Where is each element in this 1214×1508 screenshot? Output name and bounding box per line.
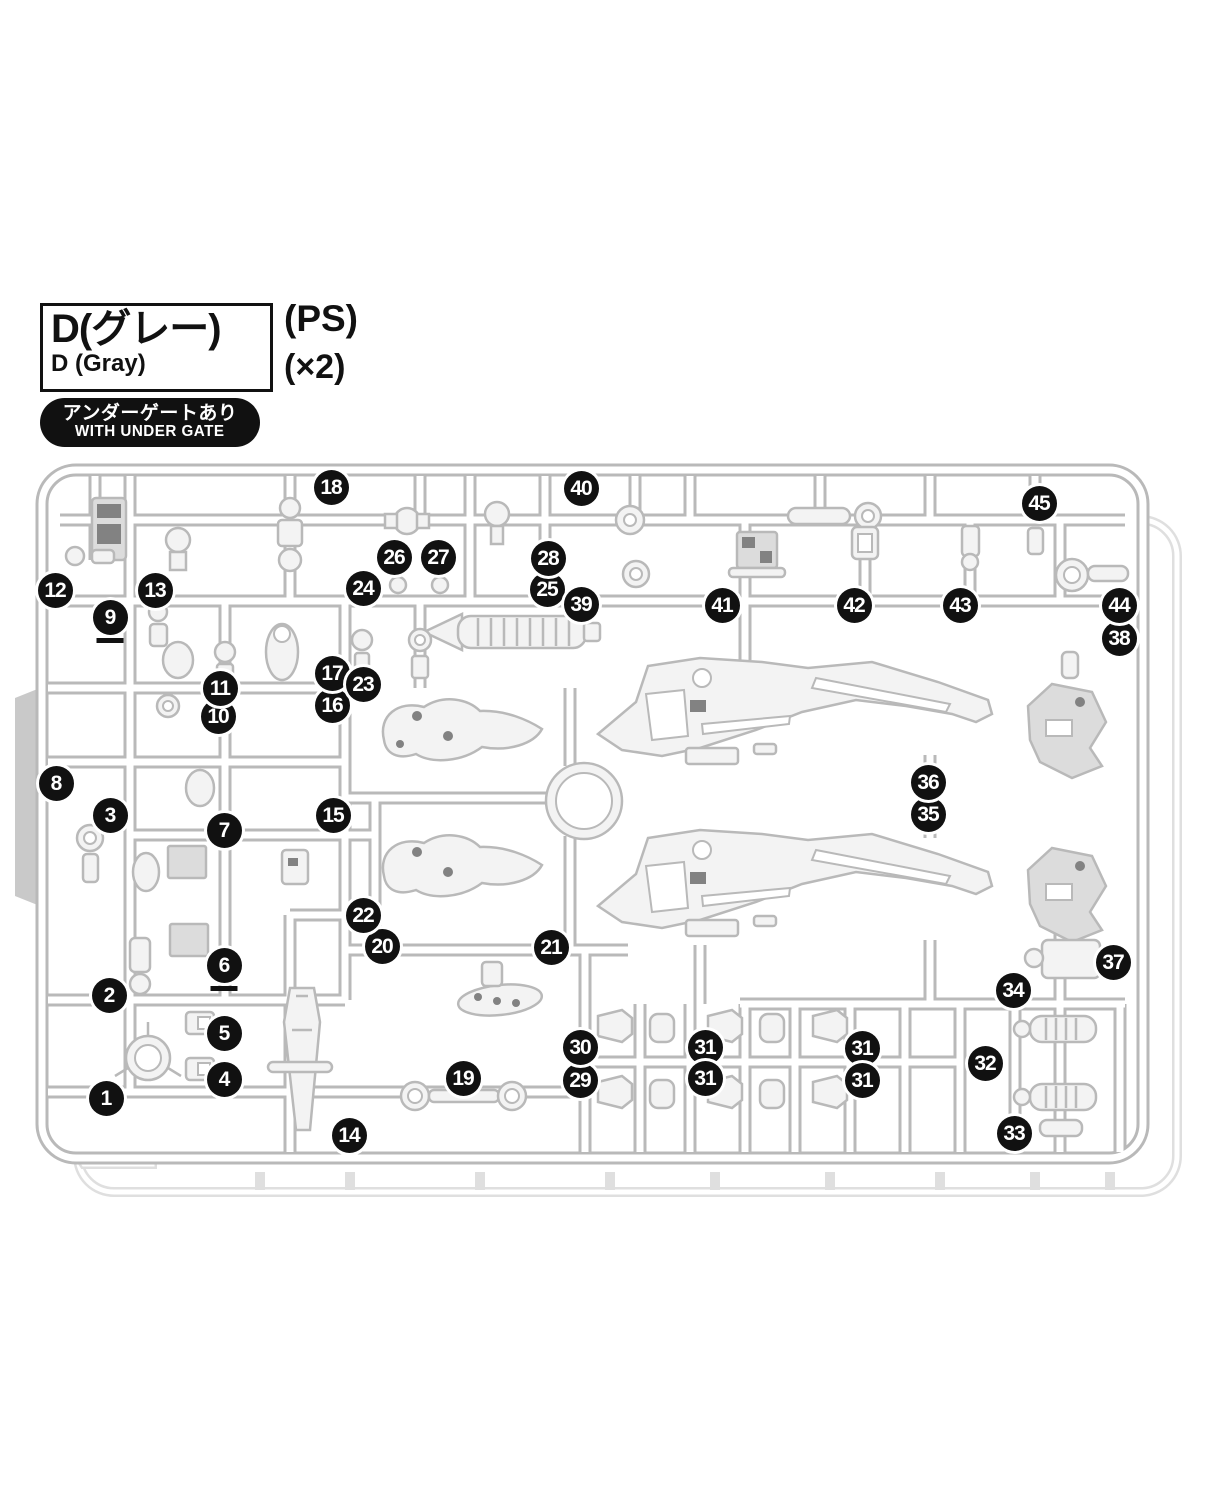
marker-number: 31	[851, 1070, 872, 1091]
marker-number: 25	[536, 579, 557, 600]
marker-number: 21	[540, 937, 561, 958]
part-marker: 28	[531, 541, 566, 576]
part-marker: 3	[93, 798, 128, 833]
marker-number: 18	[320, 477, 341, 498]
marker-number: 45	[1028, 493, 1049, 514]
marker-number: 23	[352, 674, 373, 695]
marker-number: 30	[569, 1037, 590, 1058]
marker-number: 11	[210, 678, 230, 699]
part-marker: 44	[1102, 588, 1137, 623]
marker-number: 44	[1108, 595, 1129, 616]
part-marker: 36	[911, 765, 946, 800]
marker-number: 27	[427, 547, 448, 568]
marker-number: 3	[105, 805, 116, 826]
part-marker: 31	[845, 1031, 880, 1066]
part-marker: 37	[1096, 945, 1131, 980]
markers-layer: 1234567891011121314151617181920212223242…	[0, 0, 1214, 1508]
part-marker: 35	[911, 797, 946, 832]
part-marker: 9	[93, 600, 128, 635]
part-marker: 21	[534, 930, 569, 965]
part-marker: 17	[315, 656, 350, 691]
part-marker: 31	[845, 1063, 880, 1098]
marker-number: 40	[570, 478, 591, 499]
part-marker: 29	[563, 1063, 598, 1098]
part-marker: 30	[563, 1030, 598, 1065]
part-marker: 5	[207, 1016, 242, 1051]
marker-number: 32	[974, 1053, 995, 1074]
marker-number: 13	[144, 580, 165, 601]
marker-number: 5	[219, 1023, 230, 1044]
marker-number: 31	[694, 1068, 715, 1089]
marker-number: 2	[104, 985, 115, 1006]
part-marker: 11	[203, 671, 238, 706]
part-marker: 27	[421, 540, 456, 575]
part-marker: 1	[89, 1081, 124, 1116]
marker-number: 43	[949, 595, 970, 616]
part-marker: 20	[365, 929, 400, 964]
part-marker: 24	[346, 571, 381, 606]
part-marker: 41	[705, 588, 740, 623]
part-marker: 33	[997, 1116, 1032, 1151]
marker-number: 33	[1003, 1123, 1024, 1144]
marker-number: 31	[694, 1037, 715, 1058]
part-marker: 32	[968, 1046, 1003, 1081]
marker-number: 35	[917, 804, 938, 825]
part-marker: 43	[943, 588, 978, 623]
marker-number: 9	[105, 607, 116, 628]
marker-number: 8	[51, 773, 62, 794]
marker-number: 16	[321, 695, 342, 716]
marker-number: 10	[207, 706, 228, 727]
part-marker: 19	[446, 1061, 481, 1096]
marker-number: 17	[321, 663, 342, 684]
manual-page: D(グレー) D (Gray) (PS) (×2) アンダーゲートあり WITH…	[0, 0, 1214, 1508]
part-marker: 14	[332, 1118, 367, 1153]
part-marker: 13	[138, 573, 173, 608]
part-marker: 22	[346, 898, 381, 933]
marker-number: 36	[917, 772, 938, 793]
marker-number: 26	[383, 547, 404, 568]
part-marker: 39	[564, 587, 599, 622]
part-marker: 31	[688, 1030, 723, 1065]
part-marker: 18	[314, 470, 349, 505]
marker-number: 6	[219, 955, 230, 976]
marker-number: 31	[851, 1038, 872, 1059]
marker-number: 41	[711, 595, 732, 616]
marker-number: 7	[219, 820, 230, 841]
part-marker: 34	[996, 973, 1031, 1008]
marker-number: 4	[219, 1069, 230, 1090]
marker-number: 39	[570, 594, 591, 615]
marker-number: 1	[101, 1088, 112, 1109]
part-marker: 16	[315, 688, 350, 723]
part-marker: 38	[1102, 621, 1137, 656]
marker-number: 20	[371, 936, 392, 957]
part-marker: 25	[530, 572, 565, 607]
part-marker: 8	[39, 766, 74, 801]
marker-number: 38	[1108, 628, 1129, 649]
marker-number: 15	[322, 805, 343, 826]
part-marker: 40	[564, 471, 599, 506]
marker-number: 34	[1002, 980, 1023, 1001]
marker-number: 22	[352, 905, 373, 926]
marker-number: 37	[1102, 952, 1123, 973]
marker-number: 29	[569, 1070, 590, 1091]
part-marker: 15	[316, 798, 351, 833]
part-marker: 4	[207, 1062, 242, 1097]
marker-number: 12	[44, 580, 65, 601]
marker-number: 14	[338, 1125, 359, 1146]
part-marker: 7	[207, 813, 242, 848]
part-marker: 31	[688, 1061, 723, 1096]
part-marker: 12	[38, 573, 73, 608]
part-marker: 42	[837, 588, 872, 623]
marker-number: 42	[843, 595, 864, 616]
marker-number: 19	[452, 1068, 473, 1089]
part-marker: 26	[377, 540, 412, 575]
marker-number: 28	[537, 548, 558, 569]
marker-number: 24	[352, 578, 373, 599]
part-marker: 6	[207, 948, 242, 983]
part-marker: 2	[92, 978, 127, 1013]
part-marker: 45	[1022, 486, 1057, 521]
part-marker: 23	[346, 667, 381, 702]
